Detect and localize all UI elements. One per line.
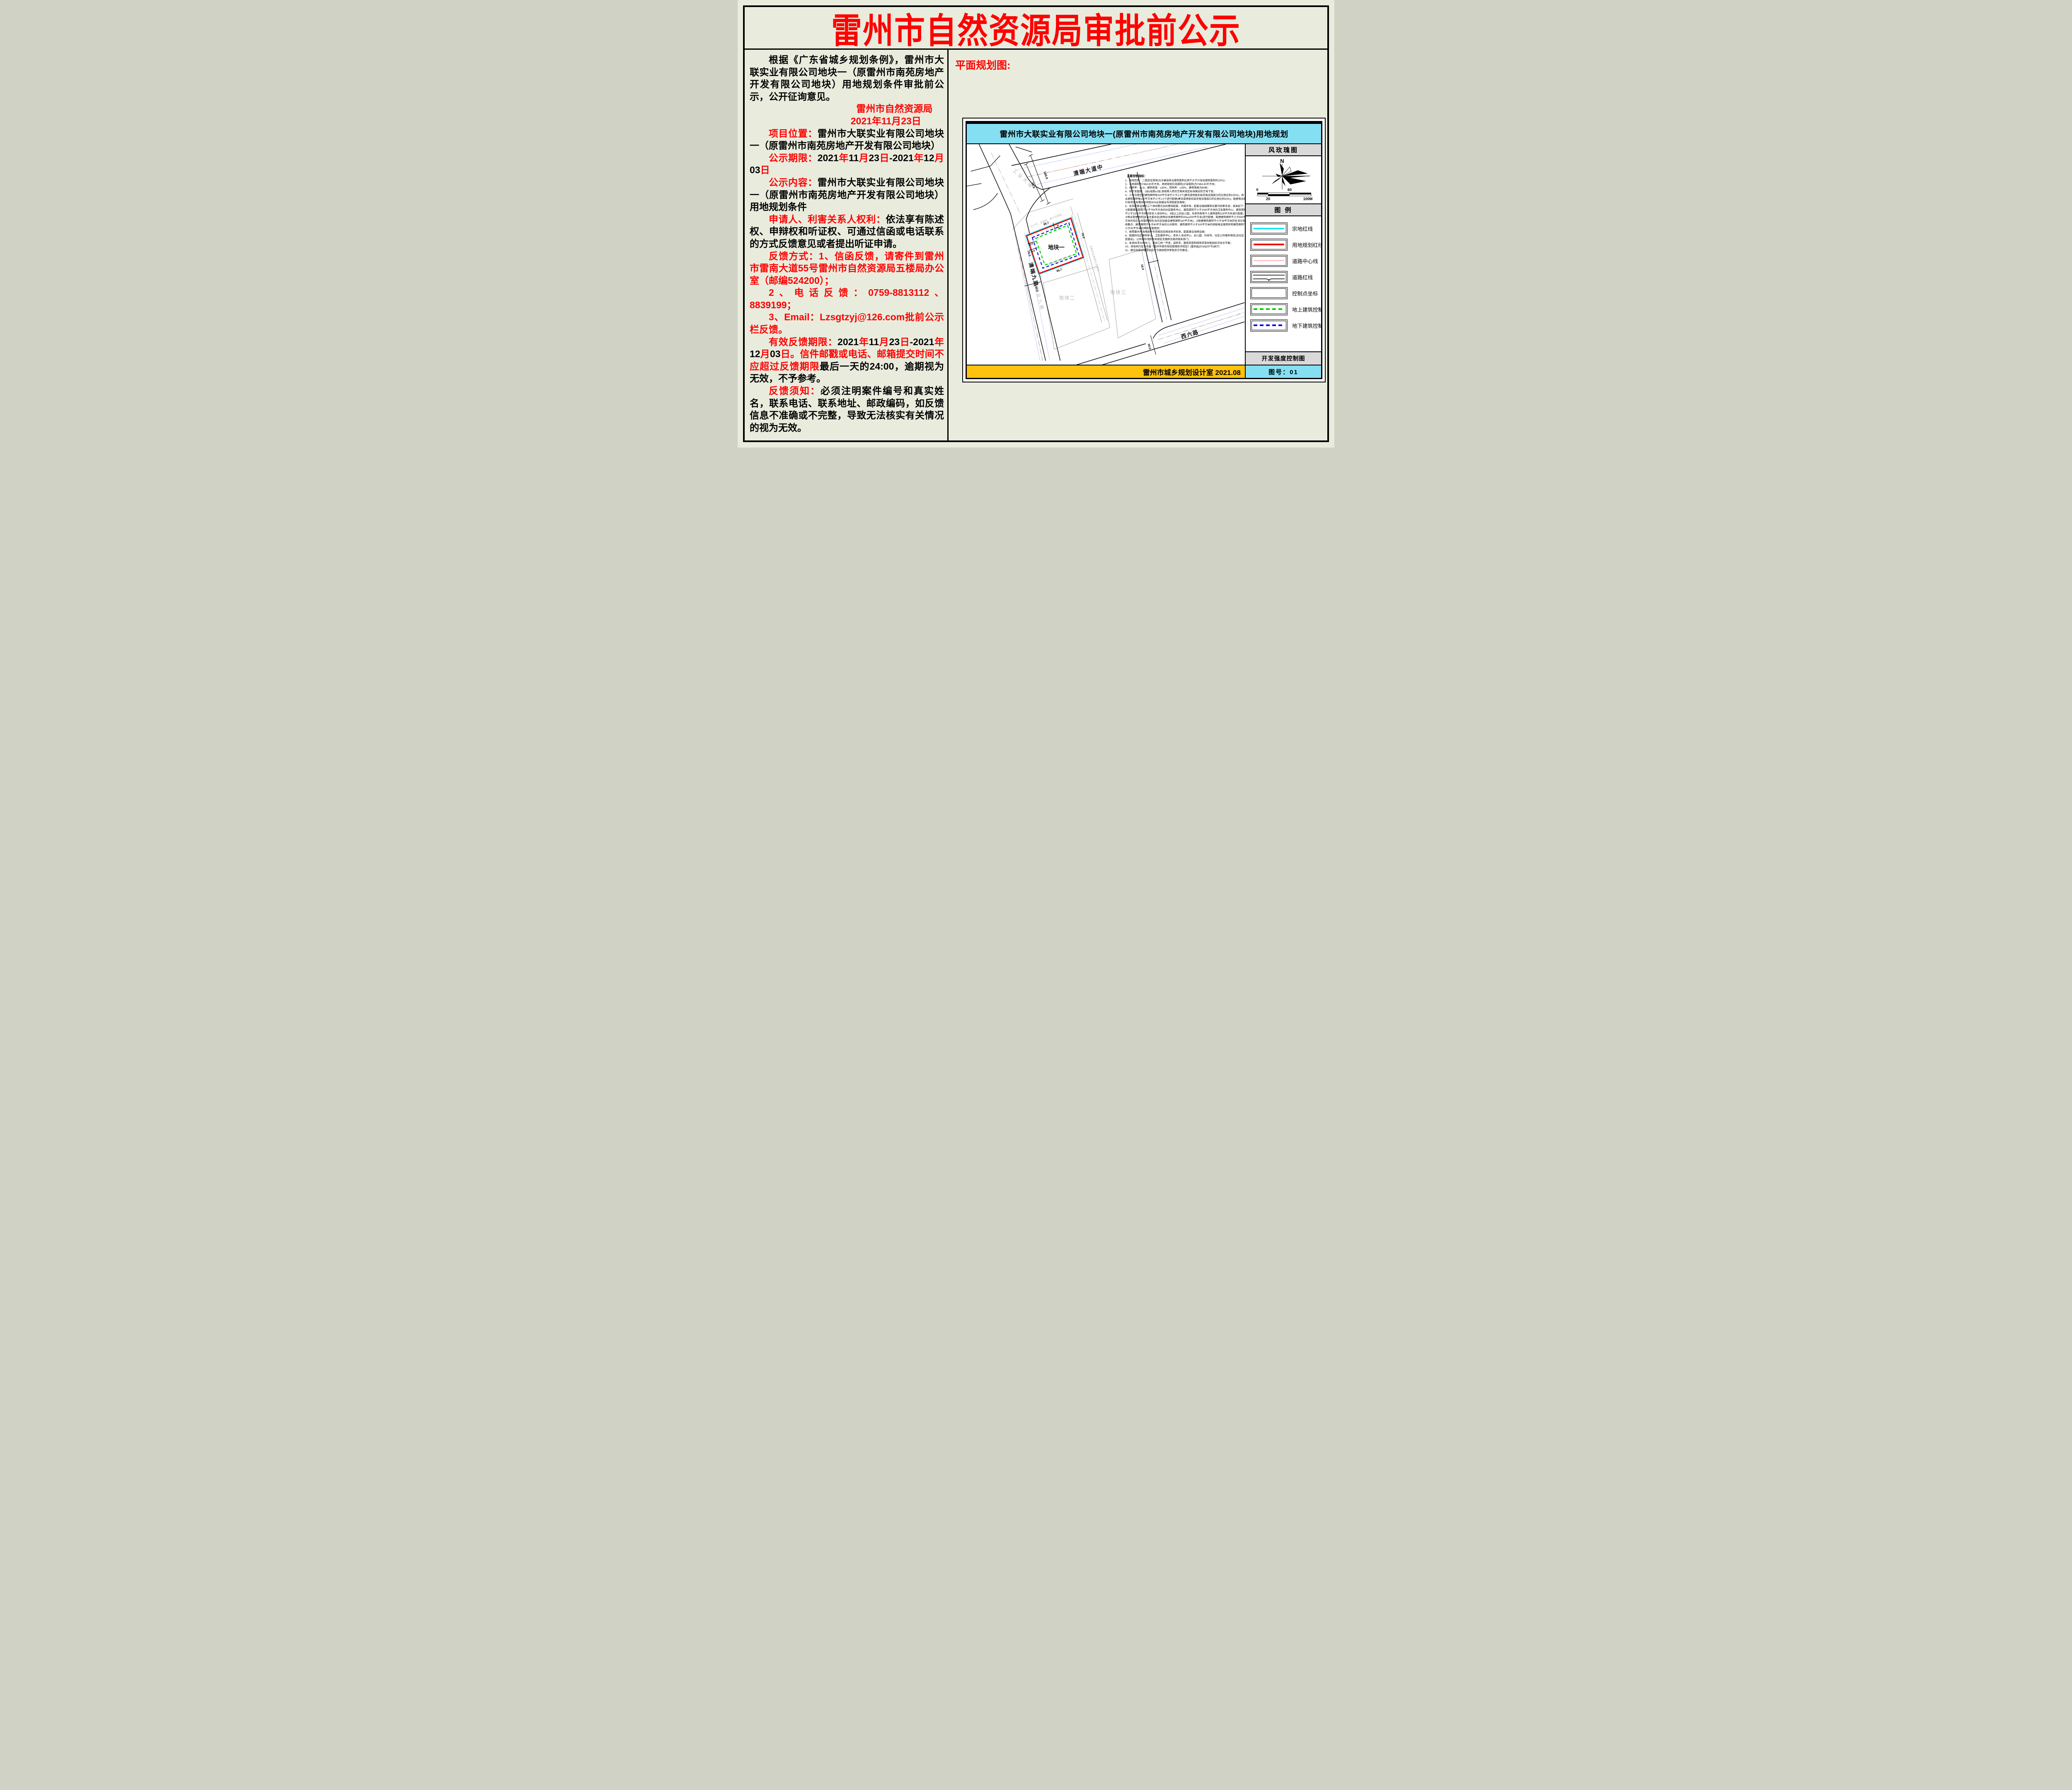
text-run: 03	[750, 164, 760, 175]
legend-item-blue: 地下建筑控制线	[1246, 320, 1321, 331]
indicator-item: 7、按照雷州市海绵城市专项规划及相关技术标准，配套建设海绵设施；	[1125, 230, 1245, 234]
legend-item-cyan: 宗地红线	[1246, 223, 1321, 234]
page-title: 雷州市自然资源局审批前公示	[831, 7, 1241, 50]
legend-line	[1254, 228, 1284, 229]
text-run: 年	[859, 336, 869, 347]
plan-content: 清端大道中 工业大道 清端九路 工业九路 西六路 地块一 地块二 地块三	[967, 144, 1321, 378]
plan-title-bar: 雷州市大联实业有限公司地块一(原雷州市南苑房地产开发有限公司地块)用地规划	[967, 124, 1321, 144]
indicator-item: 2、宗地面积为7464.60平方米，用地规划红线面积(计容面积)为7464.60…	[1125, 182, 1245, 186]
plan-drawing-panel: 清端大道中 工业大道 清端九路 工业九路 西六路 地块一 地块二 地块三	[967, 144, 1246, 378]
text-run: 23	[869, 152, 879, 163]
scale-bar	[1257, 193, 1311, 196]
indicator-item: 4、地下室层数：1层≤层数≤2层,且按照人民防空相关规定标准建设防空地下室；	[1125, 190, 1245, 194]
north-label: N	[1280, 158, 1284, 164]
notice-page: 雷州市自然资源局审批前公示 根据《广东省城乡规划条例》，雷州市大联实业有限公司地…	[738, 0, 1334, 447]
legend-line	[1254, 260, 1284, 261]
legend-sample-cyan-icon	[1251, 224, 1286, 233]
text-run: 12	[924, 152, 934, 163]
legend-sample-road-icon	[1251, 272, 1286, 282]
plan-footer-bar: 雷州市城乡规划设计室 2021.08	[967, 365, 1245, 378]
text-run: 项目位置：	[769, 128, 818, 139]
scale-20: 20	[1266, 197, 1270, 201]
plot3-label: 地块三	[1110, 290, 1127, 295]
text-run: 雷州市自然资源局	[856, 103, 932, 114]
notice-paragraph: 反馈方式：1、信函反馈，请寄件到雷州市雷南大道55号雷州市自然资源局五楼局办公室…	[750, 250, 944, 287]
legend-sample-empty-icon	[1251, 288, 1286, 298]
legend-label: 用地规划红线	[1292, 241, 1321, 249]
text-run: 公示期限：	[769, 152, 818, 163]
plot2-label: 地块二	[1059, 295, 1075, 301]
wind-rose-diagram: N	[1246, 156, 1321, 203]
legend-label: 地上建筑控制线	[1292, 305, 1321, 313]
notice-paragraph: 反馈须知：必须注明案件编号和真实姓名，联系电话、联系地址、邮政编码，如反馈信息不…	[750, 385, 944, 434]
indicator-item: 10、其他未约定条件按《雷州市城市规划管理技术规定》(雷府函[2018]297号…	[1125, 245, 1245, 249]
notice-paragraph: 3、Email：Lzsgtzyj@126.com批前公示栏反馈。	[750, 311, 944, 336]
legend-line	[1254, 244, 1284, 245]
wind-rose-header: 风玫瑰图	[1246, 144, 1321, 156]
text-run: 日	[879, 152, 889, 163]
text-run: -2021	[889, 152, 914, 163]
wind-rose-lobes	[1271, 163, 1312, 186]
text-run: 月	[760, 348, 770, 359]
text-run: 23	[889, 336, 900, 347]
road-label-qingduan-avenue: 清端大道中	[1073, 163, 1104, 177]
legend-label: 道路红线	[1292, 273, 1313, 281]
notice-paragraph: 项目位置：雷州市大联实业有限公司地块一（原雷州市南苑房地产开发有限公司地块）	[750, 128, 944, 152]
legend-sample-pink-icon	[1251, 256, 1286, 266]
plan-sidebar: 风玫瑰图 N	[1246, 144, 1321, 378]
indicator-item: 3、容积率：≤2.8，建筑密度：≤30%，绿地率：≥35%，建筑限高为80米；	[1125, 186, 1245, 190]
page-frame: 雷州市自然资源局审批前公示 根据《广东省城乡规划条例》，雷州市大联实业有限公司地…	[743, 5, 1329, 442]
notice-paragraph: 2、电话反馈：0759-8813112、8839199；	[750, 287, 944, 311]
text-run: 日	[760, 164, 770, 175]
dim-95-7-bottom: 95.7	[1056, 268, 1062, 273]
text-run: 2021年11月23日	[851, 116, 921, 126]
plot1-label: 地块一	[1048, 244, 1065, 251]
text-run: 日	[900, 336, 910, 347]
plan-canvas: 清端大道中 工业大道 清端九路 工业九路 西六路 地块一 地块二 地块三	[967, 144, 1245, 365]
notice-paragraph: 公示期限：2021年11月23日-2021年12月03日	[750, 152, 944, 177]
indicator-item: 1、用地性质：二类居住用地(允许兼容商业建筑面积比例不大于计容总建筑面积的10%…	[1125, 179, 1245, 182]
text-run: 年	[914, 152, 924, 163]
indicator-item: 11、建设前报详细规划设计方案按程序审批后方可建设。	[1125, 249, 1245, 252]
plan-column: 平面规划图: 雷州市大联实业有限公司地块一(原雷州市南苑房地产开发有限公司地块)…	[949, 50, 1327, 440]
control-indicators-list: 1、用地性质：二类居住用地(允许兼容商业建筑面积比例不大于计容总建筑面积的10%…	[1125, 179, 1245, 252]
legend-item-green: 地上建筑控制线	[1246, 304, 1321, 314]
text-run: 年	[934, 336, 944, 347]
notice-text-column: 根据《广东省城乡规划条例》，雷州市大联实业有限公司地块一（原雷州市南苑房地产开发…	[745, 50, 949, 440]
indicator-item: 8、配建的社区服务中心、卫生服务中心、老年人活动中心、幼儿园、托老所、社区公共服…	[1125, 234, 1245, 242]
legend-header: 图 例	[1246, 204, 1321, 216]
legend-item-empty: 控制点坐标	[1246, 288, 1321, 298]
text-run: 11	[869, 336, 879, 347]
control-indicators-title: 主要控制指标：	[1127, 174, 1245, 178]
legend-line	[1254, 324, 1284, 326]
legend-label: 控制点坐标	[1292, 289, 1318, 297]
legend-sample-blue-icon	[1251, 321, 1286, 330]
legend-label: 宗地红线	[1292, 225, 1313, 232]
plan-sheet: 雷州市大联实业有限公司地块一(原雷州市南苑房地产开发有限公司地块)用地规划	[962, 118, 1326, 382]
text-run: 有效反馈期限：	[769, 336, 838, 347]
owner-label-lane: 大联实业有限公司用地	[1089, 244, 1101, 272]
text-run: 2021	[818, 152, 839, 163]
scale-60: 60	[1288, 188, 1292, 192]
legend-label: 地下建筑控制线	[1292, 322, 1321, 329]
notice-paragraph: 雷州市自然资源局	[750, 103, 944, 115]
plan-section-label: 平面规划图:	[955, 57, 1010, 72]
legend-item-pink: 道路中心线	[1246, 255, 1321, 266]
text-run: 12	[750, 348, 760, 359]
indicator-item: 9、本地块须与地块二、地块三统一开发，容积率、建筑密度和绿地率等控制指标可综合平…	[1125, 241, 1245, 245]
text-run: 月	[859, 152, 869, 163]
wind-rose-panel: N	[1246, 156, 1321, 204]
scale-100m: 100M	[1303, 197, 1313, 201]
plan-sheet-frame: 雷州市大联实业有限公司地块一(原雷州市南苑房地产开发有限公司地块)用地规划	[966, 121, 1322, 379]
title-row: 雷州市自然资源局审批前公示	[745, 7, 1327, 50]
text-run: 反馈方式：1、信函反馈，请寄件到雷州市雷南大道55号雷州市自然资源局五楼局办公室…	[750, 251, 944, 286]
text-run: 根据《广东省城乡规划条例》，雷州市大联实业有限公司地块一（原雷州市南苑房地产开发…	[750, 54, 944, 102]
text-run: 公示内容：	[769, 177, 818, 188]
text-run: 03	[770, 348, 781, 359]
notice-paragraph: 有效反馈期限：2021年11月23日-2021年12月03日。信件邮戳或电话、邮…	[750, 336, 944, 385]
text-run: -2021	[910, 336, 934, 347]
notice-paragraph: 公示内容：雷州市大联实业有限公司地块一（原雷州市南苑房地产开发有限公司地块）用地…	[750, 177, 944, 213]
indicator-item: 6、各项配套设施为三个地块整合后的整体配套，共建共享，配套设施规模和位置可统筹考…	[1125, 205, 1245, 230]
dim-78-right: 78.0	[1081, 232, 1086, 239]
lane-centerline	[1075, 215, 1105, 321]
notice-paragraph: 申请人、利害关系人权利：依法享有陈述权、申辩权和听证权、可通过信函或电话联系的方…	[750, 213, 944, 250]
legend-line	[1254, 308, 1284, 310]
notice-paragraph: 根据《广东省城乡规划条例》，雷州市大联实业有限公司地块一（原雷州市南苑房地产开发…	[750, 54, 944, 103]
legend-item-road: 道路红线	[1246, 271, 1321, 282]
text-run: 11	[849, 152, 859, 163]
legend-label: 道路中心线	[1292, 257, 1318, 265]
control-indicators-block: 主要控制指标： 1、用地性质：二类居住用地(允许兼容商业建筑面积比例不大于计容总…	[1125, 174, 1245, 252]
text-run: 年	[839, 152, 849, 163]
text-run: 2021	[838, 336, 859, 347]
dim-18: 18.0	[1140, 264, 1145, 271]
legend-list: 宗地红线用地规划红线道路中心线道路红线控制点坐标地上建筑控制线地下建筑控制线	[1246, 216, 1321, 351]
text-run: 申请人、利害关系人权利：	[769, 214, 886, 225]
text-run: 月	[934, 152, 944, 163]
notice-paragraph: 2021年11月23日	[750, 115, 944, 128]
text-run: 3、Email：Lzsgtzyj@126.com批前公示栏反馈。	[750, 312, 944, 335]
dim-30-south: 30.0	[1147, 343, 1152, 350]
dim-100: 100.0	[1043, 171, 1049, 180]
text-run: 2、电话反馈：0759-8813112、8839199；	[750, 287, 944, 310]
text-run: 月	[879, 336, 889, 347]
legend-item-red: 用地规划红线	[1246, 239, 1321, 250]
body-row: 根据《广东省城乡规划条例》，雷州市大联实业有限公司地块一（原雷州市南苑房地产开发…	[745, 50, 1327, 440]
scale-0: 0	[1256, 188, 1258, 192]
indicator-item: 5、小车位按住宅建筑面积每100平方米不少于1.0个(建设或预留安装充电设施接口…	[1125, 194, 1245, 205]
legend-sample-green-icon	[1251, 305, 1286, 314]
sheet-number-bar: 图号：01	[1246, 365, 1321, 378]
development-control-bar: 开发强度控制图	[1246, 351, 1321, 365]
legend-sample-red-icon	[1251, 240, 1286, 249]
text-run: 反馈须知：	[769, 385, 821, 396]
